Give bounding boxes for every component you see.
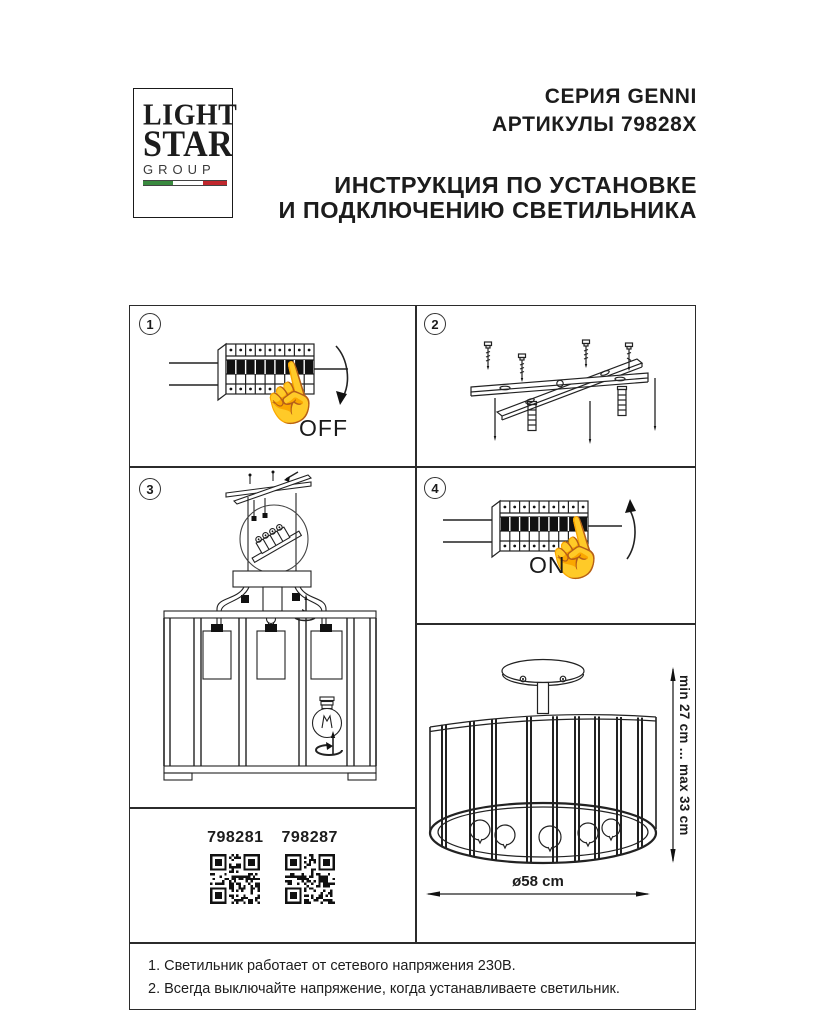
instruction-title-line1: ИНСТРУКЦИЯ ПО УСТАНОВКЕ — [278, 173, 697, 198]
flag-red-segment — [203, 181, 227, 185]
instruction-title-line2: И ПОДКЛЮЧЕНИЮ СВЕТИЛЬНИКА — [278, 198, 697, 223]
fixture-dimension-drawing — [415, 623, 695, 942]
step-1-panel: 1 — [130, 306, 415, 466]
lightstar-logo: LIGHT STAR GROUP — [133, 88, 233, 218]
title-block: СЕРИЯ GENNI АРТИКУЛЫ 79828X ИНСТРУКЦИЯ П… — [278, 84, 697, 223]
height-dimension-label: min 27 cm ... max 33 cm — [677, 675, 692, 836]
on-label: ON — [529, 552, 566, 579]
mounting-bracket-illustration — [415, 306, 695, 466]
diameter-dimension-label: ø58 cm — [498, 873, 578, 890]
steps-grid: 1 — [129, 305, 696, 1010]
note-line-2: 2. Всегда выключайте напряжение, когда у… — [148, 978, 675, 1001]
qr-panel: 798281 798287 — [130, 807, 415, 942]
flag-white-segment — [173, 181, 203, 185]
series-title: СЕРИЯ GENNI — [278, 84, 697, 109]
qr-code — [210, 854, 260, 904]
fixture-dimensions-panel: min 27 cm ... max 33 cm ø58 cm — [415, 623, 695, 942]
article-number-label: 798281 — [207, 829, 263, 847]
qr-figure-798281: 798281 — [207, 829, 263, 904]
article-number-label: 798287 — [282, 829, 338, 847]
qr-code — [285, 854, 335, 904]
qr-figure-798287: 798287 — [282, 829, 338, 904]
note-line-1: 1. Светильник работает от сетевого напря… — [148, 955, 675, 978]
articles-title: АРТИКУЛЫ 79828X — [278, 112, 697, 137]
step-4-panel: 4 — [415, 466, 695, 623]
logo-word-star: STAR — [143, 128, 232, 161]
step-3-panel: 3 — [130, 466, 415, 807]
step-2-panel: 2 — [415, 306, 695, 466]
off-label: OFF — [299, 415, 348, 442]
italian-flag-bar — [143, 180, 227, 186]
notes-section: 1. Светильник работает от сетевого напря… — [130, 942, 695, 1009]
fixture-assembly-illustration — [130, 466, 415, 807]
flag-green-segment — [143, 181, 173, 185]
instruction-sheet: LIGHT STAR GROUP СЕРИЯ GENNI АРТИКУЛЫ 79… — [0, 0, 826, 1024]
